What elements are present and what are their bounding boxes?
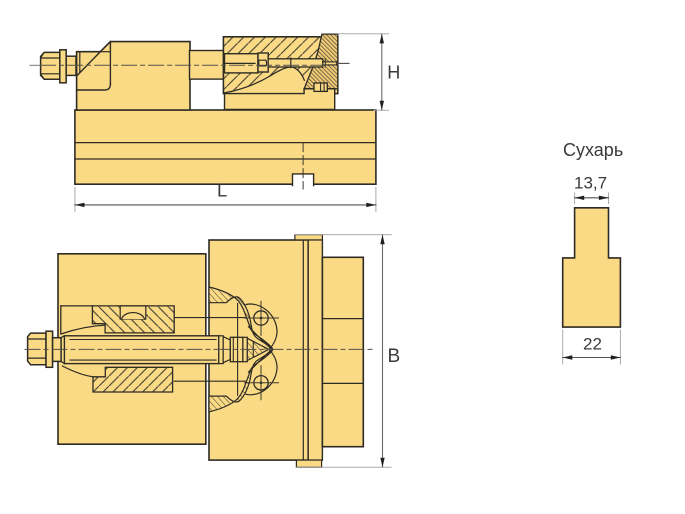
svg-text:Сухарь: Сухарь	[563, 140, 623, 160]
svg-text:H: H	[387, 62, 400, 82]
svg-text:22: 22	[583, 335, 602, 354]
svg-text:B: B	[388, 346, 401, 367]
svg-text:L: L	[217, 180, 227, 201]
svg-text:13,7: 13,7	[574, 174, 607, 193]
